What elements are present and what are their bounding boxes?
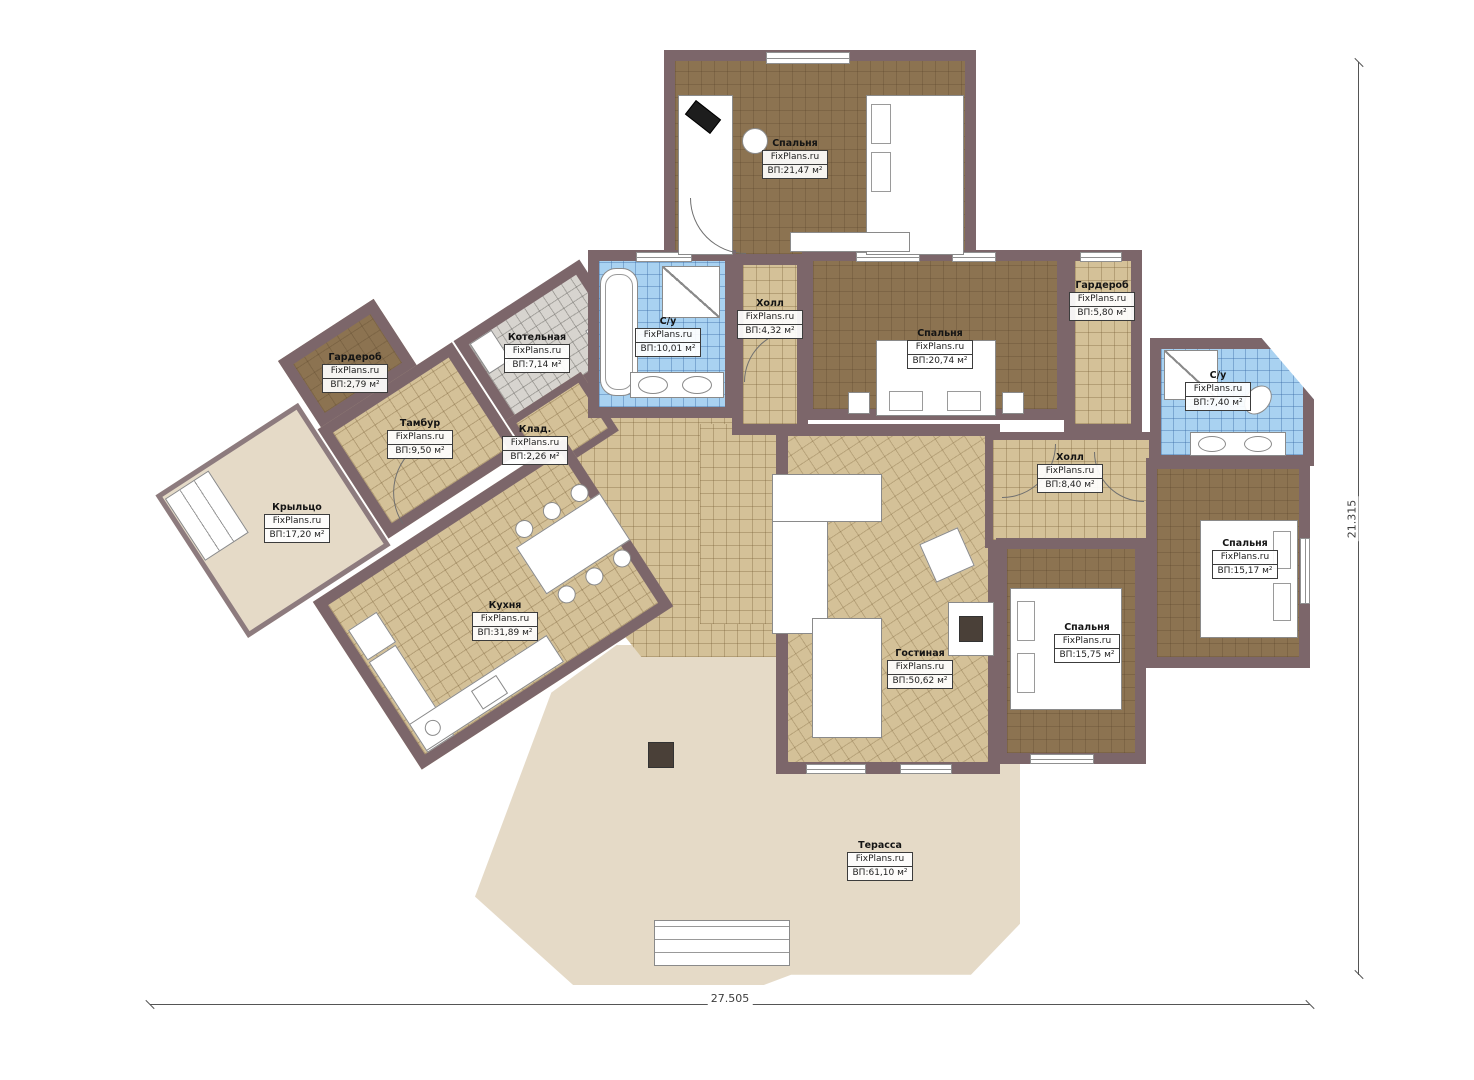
room-name: Терасса: [847, 840, 913, 851]
room-name: Тамбур: [387, 418, 453, 429]
room-name: Крыльцо: [264, 502, 330, 513]
room-label-hall-top: Холл FixPlans.ru ВП:4,32 м²: [737, 298, 803, 339]
dimension-right-label: 21.315: [1346, 496, 1359, 541]
shelf: [790, 232, 910, 252]
sink: [1198, 436, 1226, 452]
room-label-kitchen: Кухня FixPlans.ru ВП:31,89 м²: [472, 600, 538, 641]
sofa-l: [772, 474, 882, 522]
room-name: Холл: [737, 298, 803, 309]
grill: [648, 742, 674, 768]
room-label-wardrobe-right: Гардероб FixPlans.ru ВП:5,80 м²: [1069, 280, 1135, 321]
sink: [1244, 436, 1272, 452]
room-name: С/у: [1185, 370, 1251, 381]
room-brand: FixPlans.ru: [504, 344, 570, 359]
room-area: ВП:17,20 м²: [264, 529, 330, 543]
room-brand: FixPlans.ru: [1069, 292, 1135, 307]
room-area: ВП:7,40 м²: [1185, 397, 1251, 411]
room-name: Спальня: [1212, 538, 1278, 549]
room-area: ВП:5,80 м²: [1069, 307, 1135, 321]
shower: [662, 266, 720, 318]
room-brand: FixPlans.ru: [847, 852, 913, 867]
room-label-bedroom-2074: Спальня FixPlans.ru ВП:20,74 м²: [907, 328, 973, 369]
room-label-tambour: Тамбур FixPlans.ru ВП:9,50 м²: [387, 418, 453, 459]
dimension-right: 21.315: [1350, 62, 1368, 975]
room-label-bedroom-1575: Спальня FixPlans.ru ВП:15,75 м²: [1054, 622, 1120, 663]
room-name: Гардероб: [322, 352, 388, 363]
room-name: С/у: [635, 316, 701, 327]
room-name: Спальня: [907, 328, 973, 339]
room-area: ВП:31,89 м²: [472, 627, 538, 641]
room-brand: FixPlans.ru: [387, 430, 453, 445]
room-brand: FixPlans.ru: [264, 514, 330, 529]
room-name: Спальня: [1054, 622, 1120, 633]
room-label-terrace: Терасса FixPlans.ru ВП:61,10 м²: [847, 840, 913, 881]
floor-plan: Спальня FixPlans.ru ВП:21,47 м² Гардероб…: [0, 0, 1474, 1080]
room-label-bath-right: С/у FixPlans.ru ВП:7,40 м²: [1185, 370, 1251, 411]
room-area: ВП:15,17 м²: [1212, 565, 1278, 579]
room-label-storage: Клад. FixPlans.ru ВП:2,26 м²: [502, 424, 568, 465]
room-brand: FixPlans.ru: [762, 150, 828, 165]
room-brand: FixPlans.ru: [1185, 382, 1251, 397]
window: [1030, 754, 1094, 764]
window: [806, 764, 866, 774]
window: [900, 764, 952, 774]
room-label-living: Гостиная FixPlans.ru ВП:50,62 м²: [887, 648, 953, 689]
sofa-2: [812, 618, 882, 738]
room-area: ВП:10,01 м²: [635, 343, 701, 357]
room-area: ВП:50,62 м²: [887, 675, 953, 689]
room-brand: FixPlans.ru: [1054, 634, 1120, 649]
room-name: Спальня: [762, 138, 828, 149]
room-brand: FixPlans.ru: [472, 612, 538, 627]
room-brand: FixPlans.ru: [635, 328, 701, 343]
window: [1300, 538, 1310, 604]
sink: [682, 376, 712, 394]
fireplace-firebox: [959, 616, 983, 642]
room-label-porch: Крыльцо FixPlans.ru ВП:17,20 м²: [264, 502, 330, 543]
room-area: ВП:20,74 м²: [907, 355, 973, 369]
room-brand: FixPlans.ru: [502, 436, 568, 451]
sink: [638, 376, 668, 394]
room-name: Котельная: [504, 332, 570, 343]
room-name: Холл: [1037, 452, 1103, 463]
room-name: Гостиная: [887, 648, 953, 659]
window: [766, 52, 850, 64]
room-name: Клад.: [502, 424, 568, 435]
room-area: ВП:15,75 м²: [1054, 649, 1120, 663]
room-label-bedroom-1517: Спальня FixPlans.ru ВП:15,17 м²: [1212, 538, 1278, 579]
room-label-wardrobe-left: Гардероб FixPlans.ru ВП:2,79 м²: [322, 352, 388, 393]
room-area: ВП:2,79 м²: [322, 379, 388, 393]
room-name: Кухня: [472, 600, 538, 611]
room-area: ВП:9,50 м²: [387, 445, 453, 459]
room-area: ВП:8,40 м²: [1037, 479, 1103, 493]
room-brand: FixPlans.ru: [322, 364, 388, 379]
window: [1080, 252, 1122, 262]
room-name: Гардероб: [1069, 280, 1135, 291]
room-area: ВП:2,26 м²: [502, 451, 568, 465]
room-wardrobe-right: [1064, 250, 1142, 435]
room-area: ВП:21,47 м²: [762, 165, 828, 179]
room-brand: FixPlans.ru: [887, 660, 953, 675]
room-area: ВП:61,10 м²: [847, 867, 913, 881]
room-area: ВП:7,14 м²: [504, 359, 570, 373]
room-brand: FixPlans.ru: [1037, 464, 1103, 479]
dimension-bottom: 27.505: [150, 996, 1310, 1014]
nightstand: [1002, 392, 1024, 414]
room-label-boiler: Котельная FixPlans.ru ВП:7,14 м²: [504, 332, 570, 373]
nightstand: [848, 392, 870, 414]
room-area: ВП:4,32 м²: [737, 325, 803, 339]
room-label-bath-main: С/у FixPlans.ru ВП:10,01 м²: [635, 316, 701, 357]
terrace-steps: [654, 920, 790, 966]
room-label-hall-right: Холл FixPlans.ru ВП:8,40 м²: [1037, 452, 1103, 493]
dimension-bottom-label: 27.505: [708, 992, 753, 1005]
room-brand: FixPlans.ru: [907, 340, 973, 355]
room-brand: FixPlans.ru: [737, 310, 803, 325]
room-label-bedroom-top: Спальня FixPlans.ru ВП:21,47 м²: [762, 138, 828, 179]
room-brand: FixPlans.ru: [1212, 550, 1278, 565]
bed: [866, 95, 964, 255]
